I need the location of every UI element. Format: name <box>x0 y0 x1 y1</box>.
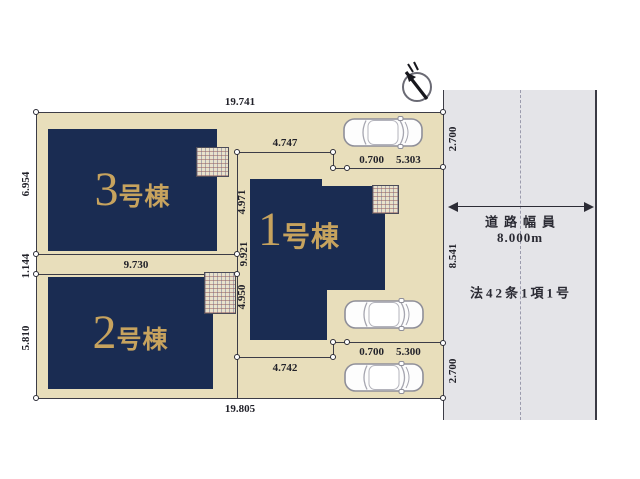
north-arrow-icon <box>394 60 438 108</box>
road-width-arrow <box>448 202 594 212</box>
building-2-number: 2 <box>92 309 116 357</box>
boundary-point <box>33 251 39 257</box>
porch-hatch-building2 <box>204 272 236 314</box>
dim-label-right-top: 2.700 <box>447 127 459 152</box>
road-centerline <box>520 90 521 420</box>
dim-label-top-inner: 4.747 <box>273 137 298 149</box>
road-width-value: 8.000m <box>497 230 543 246</box>
plot-south-boundary <box>36 398 443 399</box>
dim-label-bottom-inner: 4.742 <box>273 362 298 374</box>
dim-top-parking: 5.303 <box>396 154 421 166</box>
arrow-bar <box>454 206 588 207</box>
dim-label-bottom-parking: 0.700 5.300 <box>359 346 421 358</box>
boundary-point <box>344 339 350 345</box>
building-3: 3 号棟 <box>48 129 217 251</box>
building-2-suffix: 号棟 <box>116 310 168 356</box>
boundary-point <box>234 271 240 277</box>
arrow-left-head <box>448 202 458 212</box>
building-1-suffix: 号棟 <box>282 205 340 255</box>
dim-top-offset: 0.700 <box>359 154 384 166</box>
dim-label-mid-total: 9.921 <box>238 242 250 267</box>
road-width-label: 道路幅員 <box>485 212 561 231</box>
plot-east-boundary <box>443 90 444 420</box>
dim-label-top: 19.741 <box>225 96 255 108</box>
building-3-suffix: 号棟 <box>118 167 170 213</box>
boundary-point <box>440 109 446 115</box>
parcel-divider-line <box>36 254 237 255</box>
building-1-label: 1 号棟 <box>258 205 340 255</box>
car-icon-top <box>343 116 423 149</box>
building-3-label: 3 号棟 <box>94 166 170 214</box>
dim-label-mid-lower: 4.950 <box>236 285 248 310</box>
site-plan: 3 号棟 2 号棟 1 号棟 <box>0 0 640 479</box>
dim-label-bottom: 19.805 <box>225 403 255 415</box>
dim-label-top-parking: 0.700 5.303 <box>359 154 421 166</box>
dim-bottom-parking: 5.300 <box>396 346 421 358</box>
boundary-point <box>33 109 39 115</box>
building-2: 2 号棟 <box>48 277 213 389</box>
dim-line-4742 <box>237 357 333 358</box>
boundary-point <box>234 149 240 155</box>
dim-bottom-offset: 0.700 <box>359 346 384 358</box>
boundary-point <box>330 165 336 171</box>
porch-hatch-building3 <box>196 147 229 177</box>
car-icon-middle <box>344 298 424 331</box>
boundary-point <box>33 395 39 401</box>
arrow-right-head <box>584 202 594 212</box>
car-icon-bottom <box>344 361 424 394</box>
dim-label-right-mid: 8.541 <box>447 244 459 269</box>
boundary-point <box>440 164 446 170</box>
dim-line-4747 <box>237 152 333 153</box>
dim-label-left-top: 6.954 <box>20 172 32 197</box>
road-law-label: 法42条1項1号 <box>470 283 572 302</box>
building-2-label: 2 号棟 <box>92 309 168 357</box>
boundary-point <box>344 165 350 171</box>
boundary-point <box>234 354 240 360</box>
road-right-edge <box>595 90 597 420</box>
boundary-point <box>330 339 336 345</box>
plot-north-boundary <box>36 112 443 113</box>
dim-label-lot2-width: 9.730 <box>124 259 149 271</box>
boundary-point <box>440 395 446 401</box>
building-3-number: 3 <box>94 166 118 214</box>
boundary-point <box>33 271 39 277</box>
dim-label-left-bottom: 5.810 <box>20 326 32 351</box>
boundary-point <box>330 149 336 155</box>
dim-label-mid-upper: 4.971 <box>236 190 248 215</box>
boundary-point <box>440 340 446 346</box>
building-1-number: 1 <box>258 206 282 254</box>
dim-label-left-mid: 1.144 <box>20 254 32 279</box>
dim-label-right-bottom: 2.700 <box>447 359 459 384</box>
porch-hatch-building1 <box>372 185 399 214</box>
boundary-point <box>330 354 336 360</box>
